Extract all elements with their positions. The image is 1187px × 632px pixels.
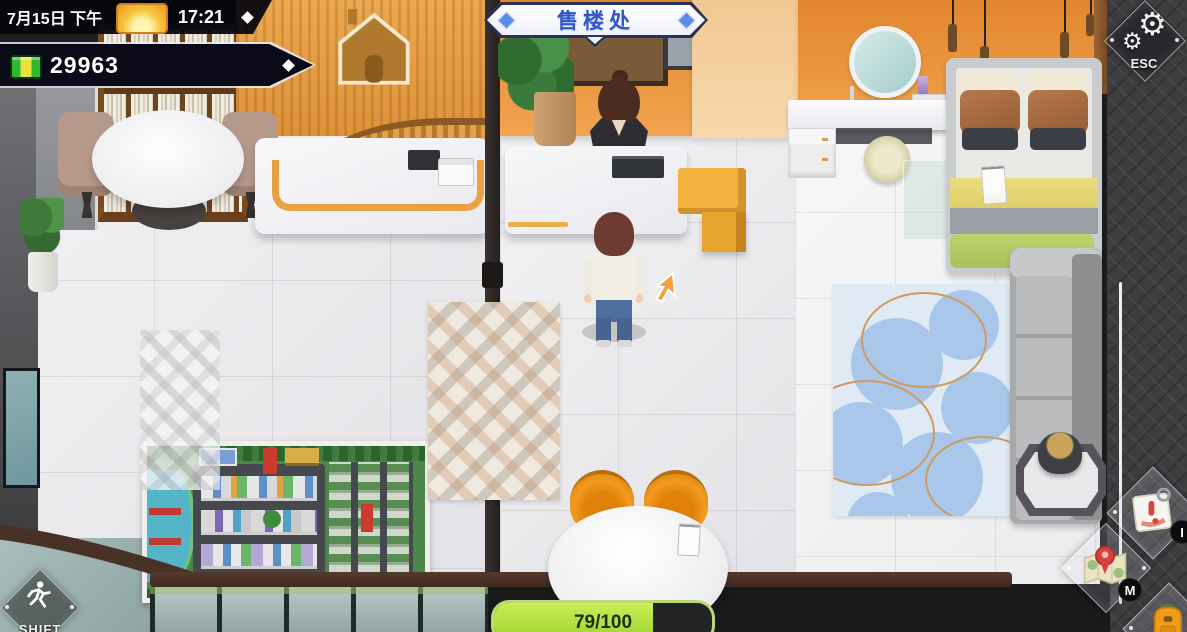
- money-icon: [10, 55, 42, 79]
- runner-icon: [25, 580, 53, 612]
- pendant-cord: [984, 0, 986, 48]
- left-window: [3, 368, 40, 488]
- pendant-lamp: [1086, 14, 1094, 36]
- map-red-landmark: [361, 504, 373, 532]
- glass-railing-panels: [150, 587, 488, 632]
- hud-money: 29963: [50, 52, 119, 79]
- bed-blanket-yellow: [950, 178, 1098, 210]
- esc-menu-button[interactable]: ⚙ ⚙ ESC: [1102, 0, 1186, 84]
- herringbone-rug-small: [140, 330, 220, 490]
- npc-hair: [598, 78, 640, 126]
- round-marble-table: [92, 110, 244, 208]
- pillow-dark: [1030, 128, 1086, 150]
- status-track: 79/100: [494, 603, 712, 632]
- hud-time: 17:21: [178, 7, 224, 28]
- status-bar: 79/100: [491, 600, 715, 632]
- player-shadow: [582, 322, 646, 342]
- bag-shortcut-button[interactable]: [1124, 584, 1187, 632]
- bed-band-gray: [950, 208, 1098, 234]
- diamond-deco: [241, 11, 254, 24]
- plant-pot-left: [28, 252, 58, 292]
- dresser: [788, 128, 836, 178]
- hud-datetime-bar: 7月15日 下午 17:21: [0, 0, 272, 34]
- map-center-tree: [263, 510, 281, 528]
- chair-legs: [70, 192, 104, 218]
- shift-label: SHIFT: [0, 622, 80, 632]
- pillow-dark: [962, 128, 1018, 150]
- left-wall: [0, 88, 38, 568]
- tasks-key-badge: I: [1170, 520, 1187, 544]
- table-lamp-bowl: [1038, 432, 1082, 474]
- game-screen: 7月15日 下午 17:21 29963 售楼处 ⚙ ⚙ ESC: [0, 0, 1187, 632]
- dresser-knob: [822, 138, 828, 141]
- banner-tip-inner: [587, 37, 603, 44]
- pendant-cord: [952, 0, 954, 26]
- vanity-table: [788, 100, 948, 130]
- gears-icon-small: ⚙: [1122, 30, 1143, 53]
- sun-icon: [116, 3, 168, 34]
- vanity-mirror: [850, 86, 854, 100]
- status-value: 79/100: [494, 612, 712, 632]
- area-rug: [833, 284, 1011, 516]
- player-hair: [594, 212, 634, 256]
- player-shirt: [591, 250, 637, 302]
- hud-date: 7月15日 下午: [7, 5, 102, 29]
- pendant-cord: [1064, 0, 1066, 34]
- herringbone-rug: [428, 302, 560, 500]
- money-bar-fill: [0, 44, 313, 86]
- desk-gold-trim: [508, 222, 568, 227]
- bed: [946, 58, 1102, 274]
- player-shoe: [596, 340, 611, 347]
- esc-label: ESC: [1102, 56, 1186, 71]
- player-character[interactable]: [578, 210, 650, 350]
- house-logo: [328, 6, 420, 92]
- yellow-side-desk: [678, 168, 746, 214]
- laptop-center: [612, 156, 664, 178]
- plant-pot-center: [534, 92, 576, 146]
- pendant-lamp: [1060, 32, 1069, 58]
- backpack-icon: [1148, 602, 1187, 632]
- vanity-mirror-glass: [849, 26, 921, 98]
- pointer-cursor: [655, 272, 685, 308]
- map-red-tower: [263, 448, 277, 474]
- dresser-knob: [822, 158, 828, 161]
- rug-ring: [861, 292, 987, 388]
- printer: [438, 158, 474, 186]
- shift-run-button[interactable]: SHIFT: [0, 572, 84, 632]
- laptop: [408, 150, 440, 170]
- hud-money-bar: 29963: [0, 42, 316, 88]
- location-banner: 售楼处: [484, 2, 708, 38]
- map-bridge: [149, 508, 181, 515]
- map-hall: [285, 448, 319, 466]
- player-shoe: [617, 340, 632, 347]
- bed-document: [981, 165, 1008, 205]
- location-title: 售楼处: [557, 5, 635, 35]
- table-document: [677, 523, 701, 556]
- banner-face: 售楼处: [487, 5, 705, 35]
- yellow-desk-leg: [702, 212, 746, 252]
- divider-joint: [482, 262, 503, 288]
- pendant-lamp: [948, 24, 957, 52]
